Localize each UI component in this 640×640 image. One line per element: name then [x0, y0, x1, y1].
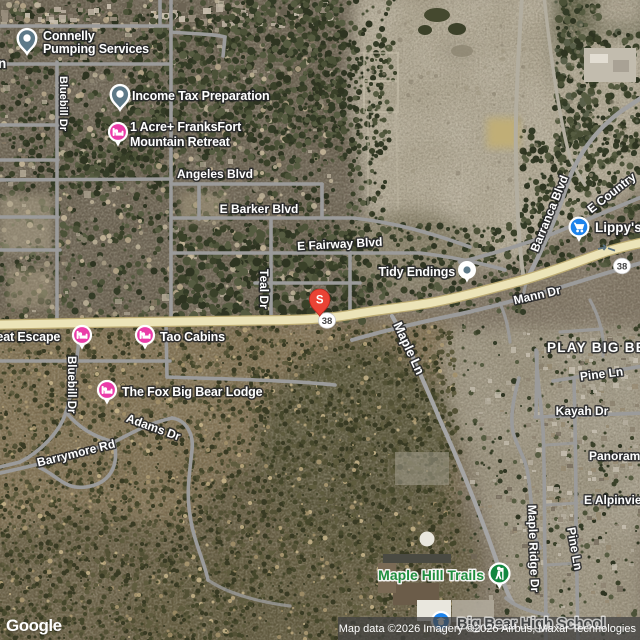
- svg-text:S: S: [316, 295, 324, 307]
- svg-text:E Barker Blvd: E Barker Blvd: [220, 202, 299, 216]
- svg-text:Connelly: Connelly: [43, 29, 95, 43]
- svg-text:Angeles Blvd: Angeles Blvd: [177, 167, 253, 181]
- svg-text:Bluebill Dr: Bluebill Dr: [57, 76, 69, 132]
- svg-text:38: 38: [322, 316, 333, 327]
- svg-text:PLAY BIG BEAR: PLAY BIG BEAR: [547, 340, 640, 355]
- svg-text:Bluebill Dr: Bluebill Dr: [65, 356, 77, 414]
- svg-text:Income Tax Preparation: Income Tax Preparation: [132, 89, 269, 103]
- svg-text:1 Acre+ FranksFort: 1 Acre+ FranksFort: [130, 120, 242, 134]
- svg-text:Tidy Endings: Tidy Endings: [379, 265, 456, 279]
- svg-text:Lippy's: Lippy's: [595, 220, 640, 235]
- svg-text:Teal Dr: Teal Dr: [257, 269, 271, 309]
- svg-text:Mountain Retreat: Mountain Retreat: [130, 135, 231, 149]
- svg-text:38: 38: [617, 261, 628, 272]
- svg-text:Retreat Escape: Retreat Escape: [0, 330, 60, 344]
- svg-text:Kayah Dr: Kayah Dr: [556, 404, 609, 418]
- svg-text:E Alpinview: E Alpinview: [584, 493, 640, 507]
- svg-text:Pumping Services: Pumping Services: [43, 42, 149, 56]
- svg-text:The Fox Big Bear Lodge: The Fox Big Bear Lodge: [122, 385, 263, 399]
- svg-text:Panorama: Panorama: [589, 449, 640, 463]
- svg-text:Map data ©2026 Imagery ©2026 A: Map data ©2026 Imagery ©2026 Airbus, Max…: [339, 623, 637, 635]
- svg-text:Tao Cabins: Tao Cabins: [160, 330, 225, 344]
- svg-text:Maple Hill Trails: Maple Hill Trails: [378, 567, 484, 583]
- svg-text:n: n: [0, 56, 6, 71]
- svg-text:Google: Google: [6, 616, 62, 635]
